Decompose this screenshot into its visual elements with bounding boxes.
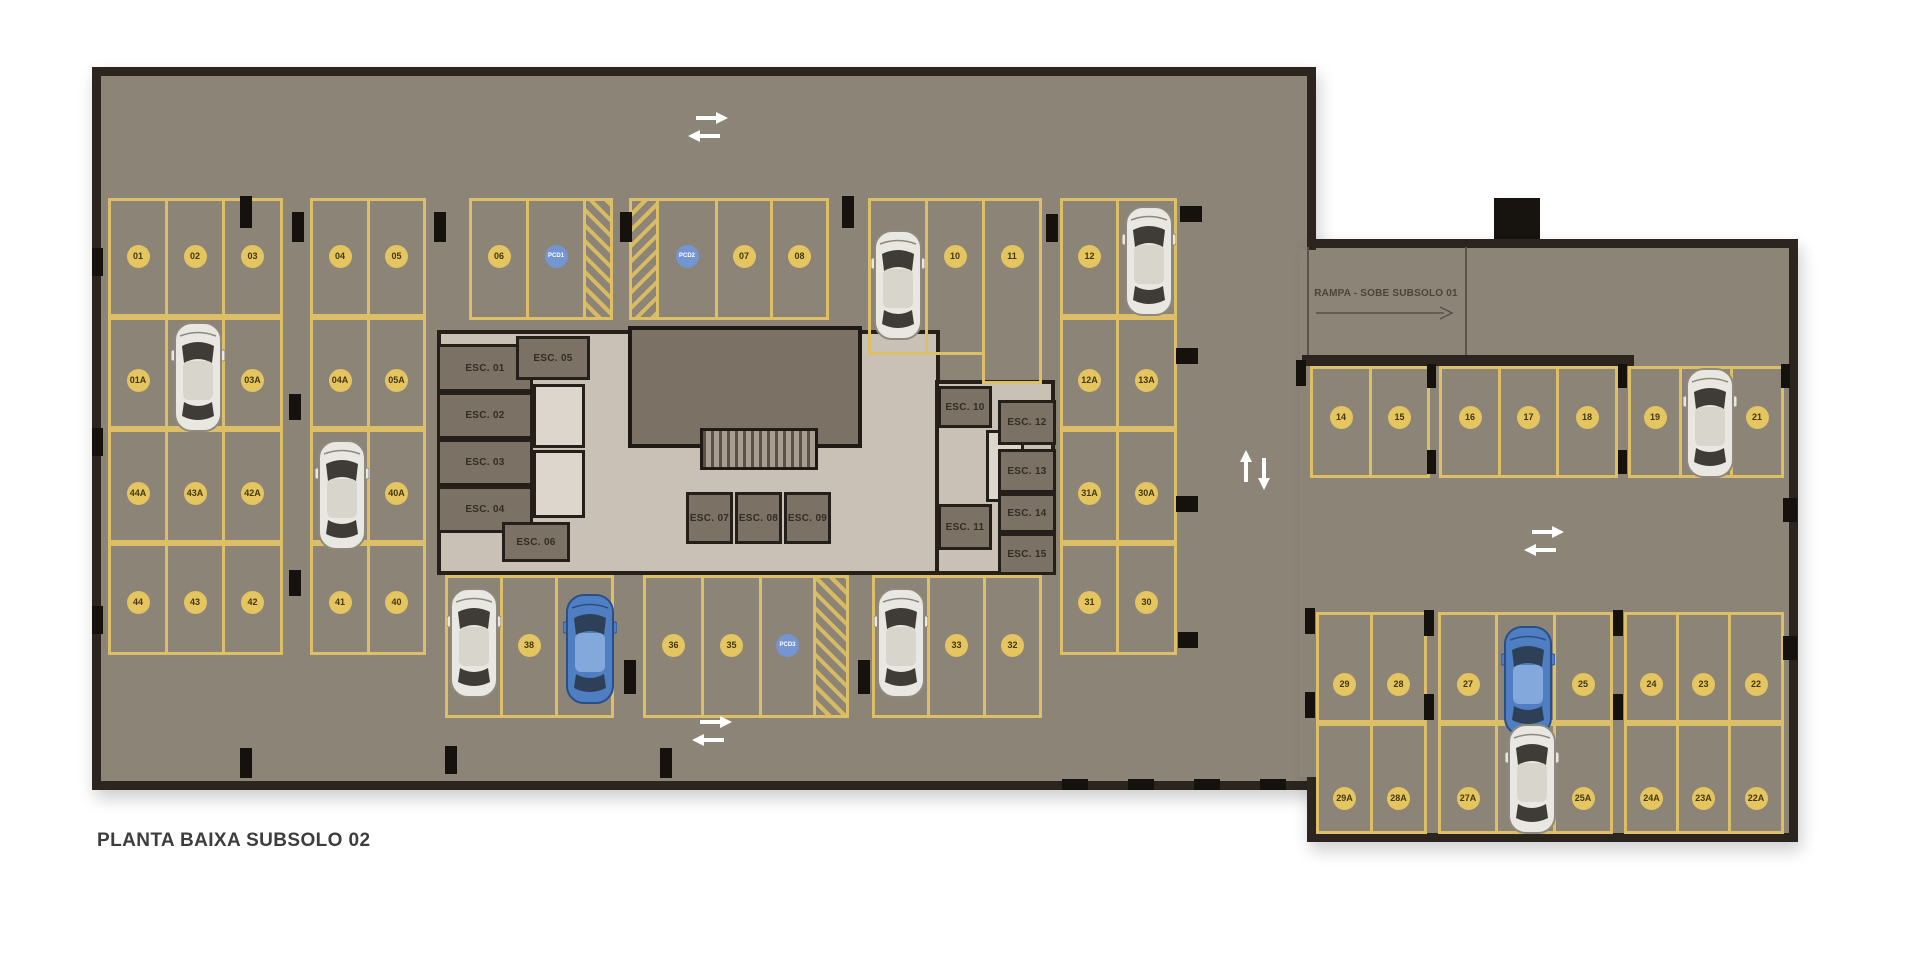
hatched-area [813,575,849,718]
parking-spot-cell [1728,723,1784,834]
two-way-lane-arrows-icon [692,716,734,748]
spot-number-badge: 01A [127,369,150,392]
pillar [1781,364,1790,388]
ramp-area [1307,247,1467,362]
spot-number-badge: 36 [662,634,685,657]
pillar [1194,779,1220,790]
parking-spot-cell [1316,612,1373,723]
spot-number-badge: 02 [184,245,207,268]
parking-spot-cell [1624,612,1679,723]
ramp-arrow-icon [1312,306,1460,320]
two-way-lane-arrows-icon [688,112,730,144]
parking-spot-cell [1370,612,1427,723]
pillar [1305,608,1315,634]
spot-number-badge: 27A [1457,787,1480,810]
pillar [1062,779,1088,790]
esc-room: ESC. 11 [938,504,992,550]
esc-room: ESC. 02 [437,392,533,439]
spot-number-badge: 31 [1078,591,1101,614]
spot-number-badge: 27 [1457,673,1480,696]
pillar [240,196,252,228]
white-car-icon [874,584,928,702]
parking-spot-cell [925,198,985,355]
spot-number-badge: 17 [1517,406,1540,429]
hatched-area [629,198,659,320]
pcd-spot-badge: PCD1 [545,245,568,268]
parking-spot-cell [1676,612,1731,723]
spot-number-badge: 01 [127,245,150,268]
pillar [1180,206,1202,222]
esc-room: ESC. 13 [998,449,1056,493]
pillar [445,746,457,774]
spot-number-badge: 43 [184,591,207,614]
esc-room: ESC. 09 [784,492,831,544]
spot-number-badge: 23 [1692,673,1715,696]
pillar [289,394,301,420]
white-car-icon [1505,720,1559,838]
white-car-icon [1122,202,1176,320]
pillar [1783,636,1797,660]
white-car-icon [871,226,925,344]
parking-spot-cell [1676,723,1731,834]
ramp-label: RAMPA - SOBE SUBSOLO 01 [1310,288,1462,299]
pillar [1783,498,1797,522]
spot-number-badge: 15 [1388,406,1411,429]
pillar [1305,692,1315,718]
pillar [240,748,252,778]
spot-number-badge: 33 [945,634,968,657]
pillar [1260,779,1286,790]
spot-number-badge: 14 [1330,406,1353,429]
spot-number-badge: 31A [1078,482,1101,505]
esc-room: ESC. 05 [516,336,590,380]
white-car-icon [447,584,501,702]
floor-plan: RAMPA - SOBE SUBSOLO 01 PLANTA BAIXA SUB… [0,0,1920,959]
parking-spot-cell [1553,723,1613,834]
spot-number-badge: 28A [1387,787,1410,810]
spot-number-badge: 03A [241,369,264,392]
pillar [1046,214,1058,242]
spot-number-badge: 44 [127,591,150,614]
spot-number-badge: 05 [385,245,408,268]
spot-number-badge: 24A [1640,787,1663,810]
spot-number-badge: 35 [720,634,743,657]
esc-room: ESC. 14 [998,493,1056,533]
spot-number-badge: 32 [1001,634,1024,657]
spot-number-badge: 04 [329,245,352,268]
pillar [92,606,103,634]
spot-number-badge: 05A [385,369,408,392]
spot-number-badge: 40 [385,591,408,614]
spot-number-badge: 22A [1745,787,1768,810]
white-car-icon [315,436,369,554]
parking-spot-cell [1316,723,1373,834]
spot-number-badge: 29A [1333,787,1356,810]
parking-spot-cell [1370,723,1427,834]
spot-number-badge: 06 [488,245,511,268]
spot-number-badge: 18 [1576,406,1599,429]
hatched-area [583,198,613,320]
pillar [292,212,304,242]
spot-number-badge: 29 [1333,673,1356,696]
spot-number-badge: 28 [1387,673,1410,696]
elevator-shaft [533,450,585,518]
esc-room: ESC. 12 [998,400,1056,445]
pillar [1613,694,1623,720]
blue-car-icon [563,590,617,708]
esc-room: ESC. 10 [938,386,992,428]
spot-number-badge: 21 [1746,406,1769,429]
pillar [1296,360,1306,386]
spot-number-badge: 41 [329,591,352,614]
spot-number-badge: 43A [184,482,207,505]
pillar [1427,364,1436,388]
spot-number-badge: 13A [1135,369,1158,392]
spot-number-badge: 07 [733,245,756,268]
parking-spot-cell [982,198,1042,384]
pillar [624,660,636,694]
spot-number-badge: 11 [1001,245,1024,268]
spot-number-badge: 30A [1135,482,1158,505]
wing-inner-wall [1302,355,1634,366]
pillar [1618,450,1627,474]
pillar [620,212,632,242]
pillar [1424,610,1434,636]
pillar [434,212,446,242]
parking-spot-cell [1624,723,1679,834]
parking-spot-cell [1438,612,1498,723]
pillar [1128,779,1154,790]
spot-number-badge: 30 [1135,591,1158,614]
esc-room: ESC. 06 [502,522,570,562]
esc-room: ESC. 08 [735,492,782,544]
spot-number-badge: 42 [241,591,264,614]
pcd-spot-badge: PCD3 [776,634,799,657]
parking-spot-cell [1728,612,1784,723]
esc-room: ESC. 07 [686,492,733,544]
spot-number-badge: 38 [518,634,541,657]
pillar [1176,496,1198,512]
spot-number-badge: 08 [788,245,811,268]
pillar [1178,632,1198,648]
spot-number-badge: 44A [127,482,150,505]
spot-number-badge: 23A [1692,787,1715,810]
pillar [92,428,103,456]
spot-number-badge: 10 [944,245,967,268]
spot-number-badge: 12A [1078,369,1101,392]
pillar [1618,364,1627,388]
pillar [92,248,103,276]
pillar [1427,450,1436,474]
white-car-icon [171,318,225,436]
spot-number-badge: 16 [1459,406,1482,429]
pillar [1424,694,1434,720]
spot-number-badge: 25A [1572,787,1595,810]
spot-number-badge: 42A [241,482,264,505]
elevator-shaft [533,384,585,448]
pillar [1613,610,1623,636]
spot-number-badge: 24 [1640,673,1663,696]
pillar [660,748,672,778]
spot-number-badge: 12 [1078,245,1101,268]
plan-title: PLANTA BAIXA SUBSOLO 02 [97,830,370,852]
esc-room: ESC. 15 [998,533,1056,575]
spot-number-badge: 03 [241,245,264,268]
esc-room: ESC. 03 [437,439,533,486]
two-way-lane-arrows-icon [1240,450,1272,492]
two-way-lane-arrows-icon [1524,526,1566,558]
pillar [842,196,854,228]
spot-number-badge: 25 [1572,673,1595,696]
pillar [289,570,301,596]
white-car-icon [1683,364,1737,482]
spot-number-badge: 22 [1745,673,1768,696]
pillar [858,660,870,694]
parking-spot-cell [1438,723,1498,834]
spot-number-badge: 19 [1644,406,1667,429]
spot-number-badge: 40A [385,482,408,505]
pillar [1176,348,1198,364]
staircase-icon [700,428,818,470]
pcd-spot-badge: PCD2 [676,245,699,268]
parking-spot-cell [1553,612,1613,723]
spot-number-badge: 04A [329,369,352,392]
